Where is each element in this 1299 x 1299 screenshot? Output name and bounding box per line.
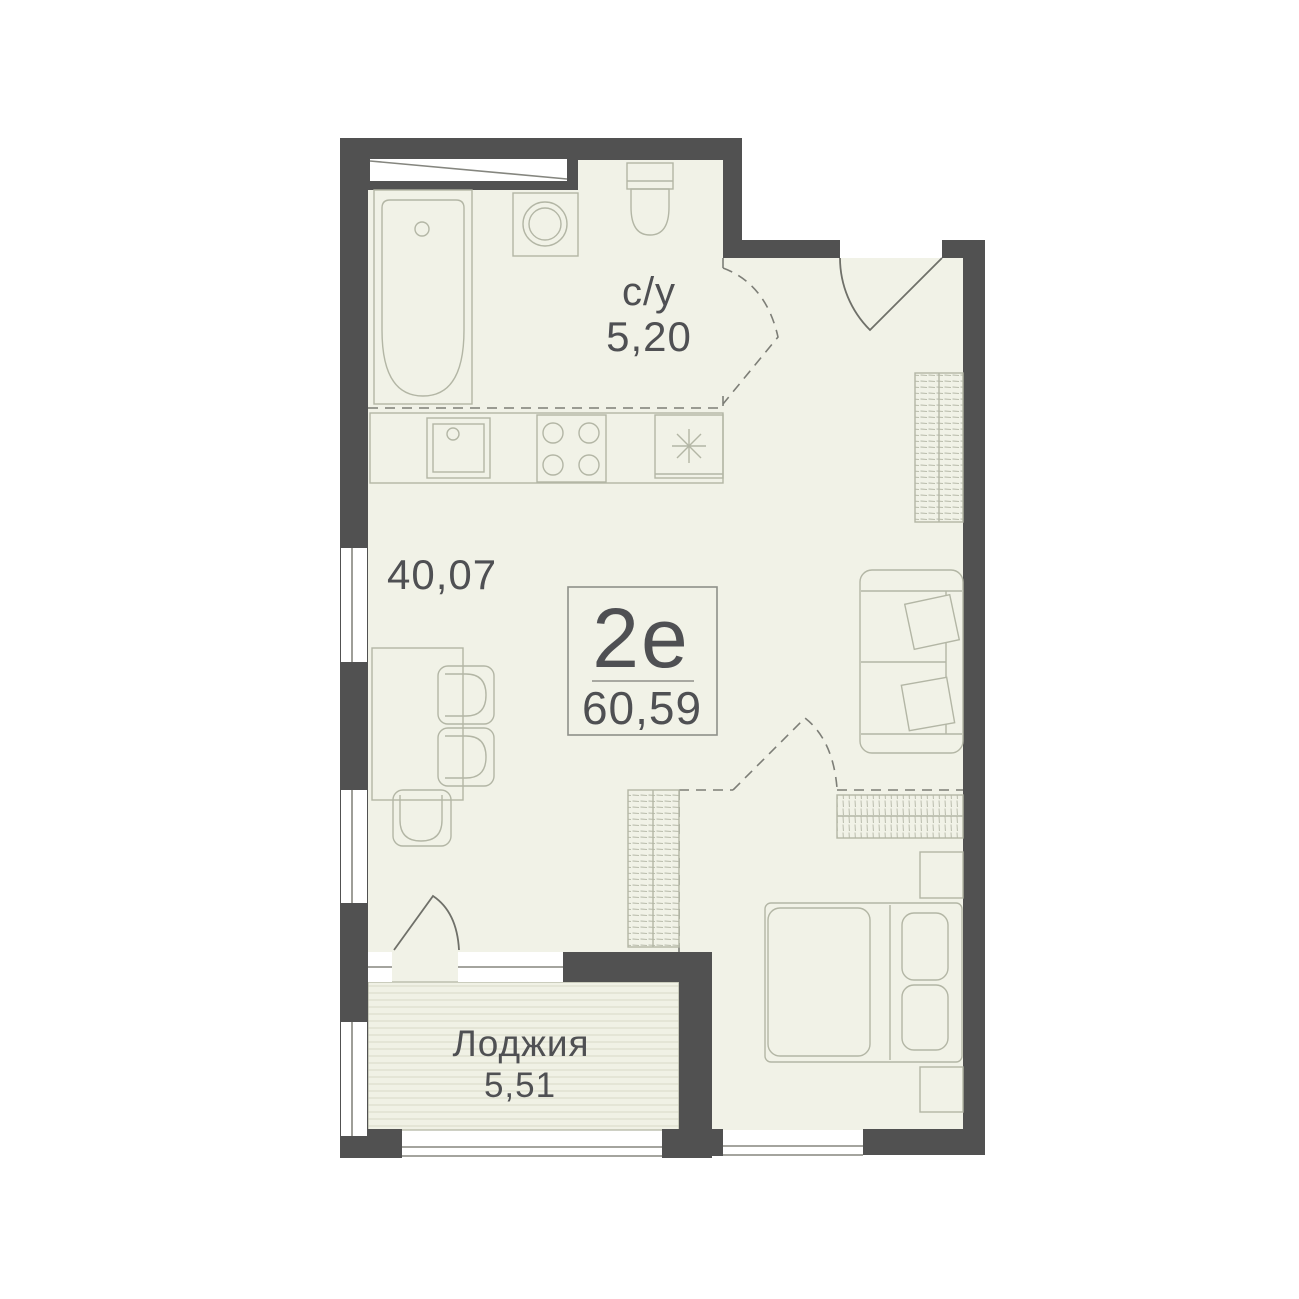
unit-total-area: 60,59 [582,682,702,734]
window-top [370,159,567,181]
loggia-label: Лоджия [452,1023,589,1064]
wall-segment [863,1129,985,1155]
entry-door-opening [840,240,942,258]
window-left-2 [341,790,367,903]
wall-segment [742,240,840,258]
wall-segment [662,1129,679,1158]
floor-plan-canvas: с/у 5,20 40,07 2е 60,59 Лоджия 5,51 [0,0,1299,1299]
unit-type-label: 2е [592,591,689,685]
bathroom-area: 5,20 [606,313,692,360]
window-balcony-side [368,952,392,982]
floor-plan: с/у 5,20 40,07 2е 60,59 Лоджия 5,51 [0,0,1299,1299]
wall-segment [679,952,712,1158]
wall-segment [723,138,742,258]
snowflake-icon [672,429,706,463]
pillow-icon [905,595,960,650]
window-left-1 [341,548,367,662]
wardrobe-icon [628,790,679,947]
wardrobe-icon [837,795,963,838]
window-bottom-loggia [402,1131,662,1157]
wall-segment [340,138,742,160]
window-left-3 [341,1022,367,1136]
bathroom-label: с/у [622,270,676,314]
pillow-icon [901,677,954,730]
balcony-door-threshold [392,952,458,982]
window-balcony [458,952,563,982]
loggia-area: 5,51 [484,1066,556,1105]
wall-segment [963,240,985,1155]
wardrobe-icon [915,373,963,522]
wall-segment [563,952,679,982]
wall-segment [712,1129,723,1156]
window-bottom-bedroom [723,1131,863,1156]
living-area: 40,07 [387,551,497,598]
